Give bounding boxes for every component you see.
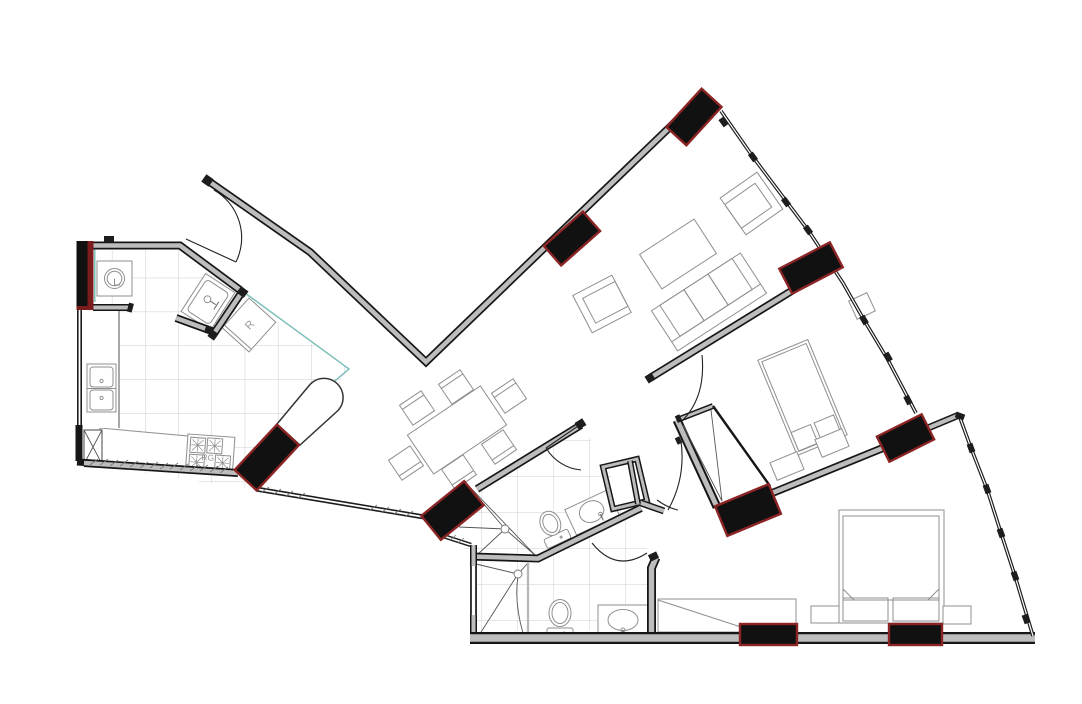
- svg-text:RG: RG: [201, 452, 214, 463]
